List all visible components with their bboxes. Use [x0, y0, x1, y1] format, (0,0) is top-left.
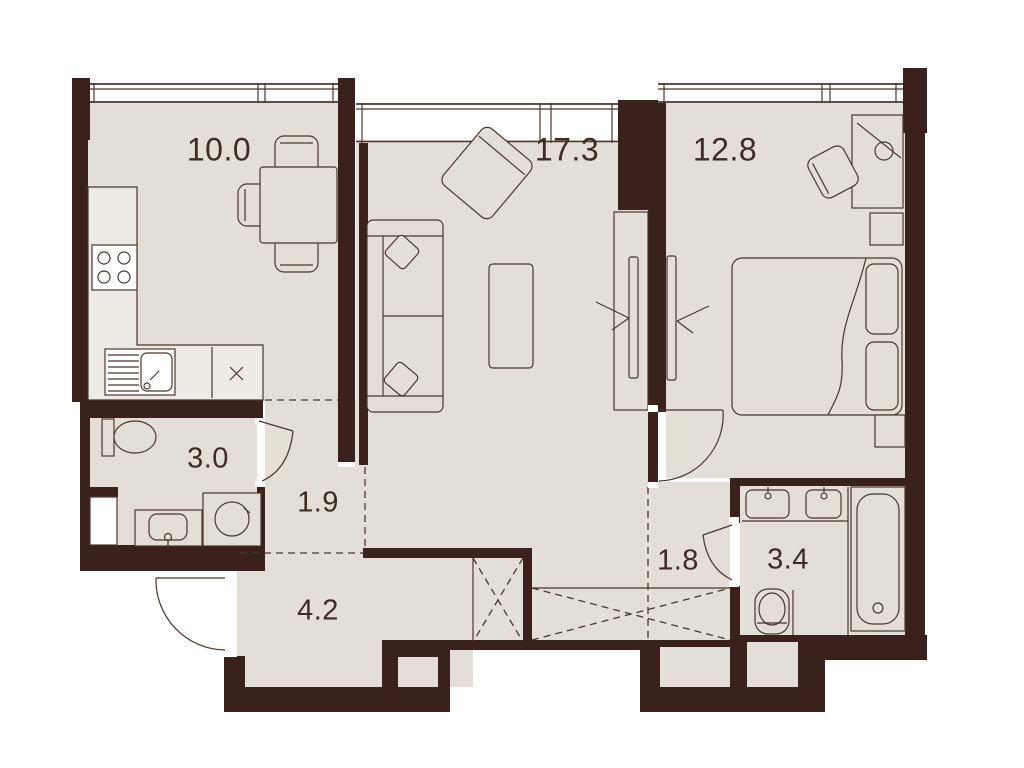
- washing-machine: [203, 493, 261, 546]
- inner-hall-area-label: 1.9: [297, 487, 339, 520]
- desk: [852, 115, 903, 208]
- bedroom-window: [658, 83, 903, 103]
- kitchen-window: [90, 83, 338, 103]
- coffee-table: [489, 264, 533, 368]
- sofa: [367, 220, 443, 412]
- toilet: [755, 589, 789, 634]
- small-bathroom-area-label: 3.0: [187, 443, 229, 476]
- entry-hall-area-label: 4.2: [297, 595, 339, 628]
- bedroom-area-label: 12.8: [693, 132, 757, 169]
- stove: [92, 245, 137, 290]
- main-bathroom-area-label: 3.4: [767, 544, 809, 577]
- kitchen-sink: [105, 349, 175, 395]
- bathtub: [851, 487, 905, 631]
- nightstand: [875, 415, 905, 447]
- entry-door: [156, 571, 237, 657]
- living-area-label: 17.3: [535, 132, 599, 169]
- kitchen-area-label: 10.0: [187, 132, 251, 169]
- floor-plan: 10.0 17.3 12.8 3.0 1.9 4.2 1.8 3.4: [0, 0, 1024, 768]
- corridor-area-label: 1.8: [657, 545, 699, 578]
- dining-table: [260, 167, 337, 243]
- floor-plan-drawing: [0, 0, 1024, 768]
- bed: [732, 258, 902, 415]
- nightstand: [870, 213, 903, 245]
- duct-niche: [90, 497, 117, 545]
- vanity-sink: [135, 510, 202, 547]
